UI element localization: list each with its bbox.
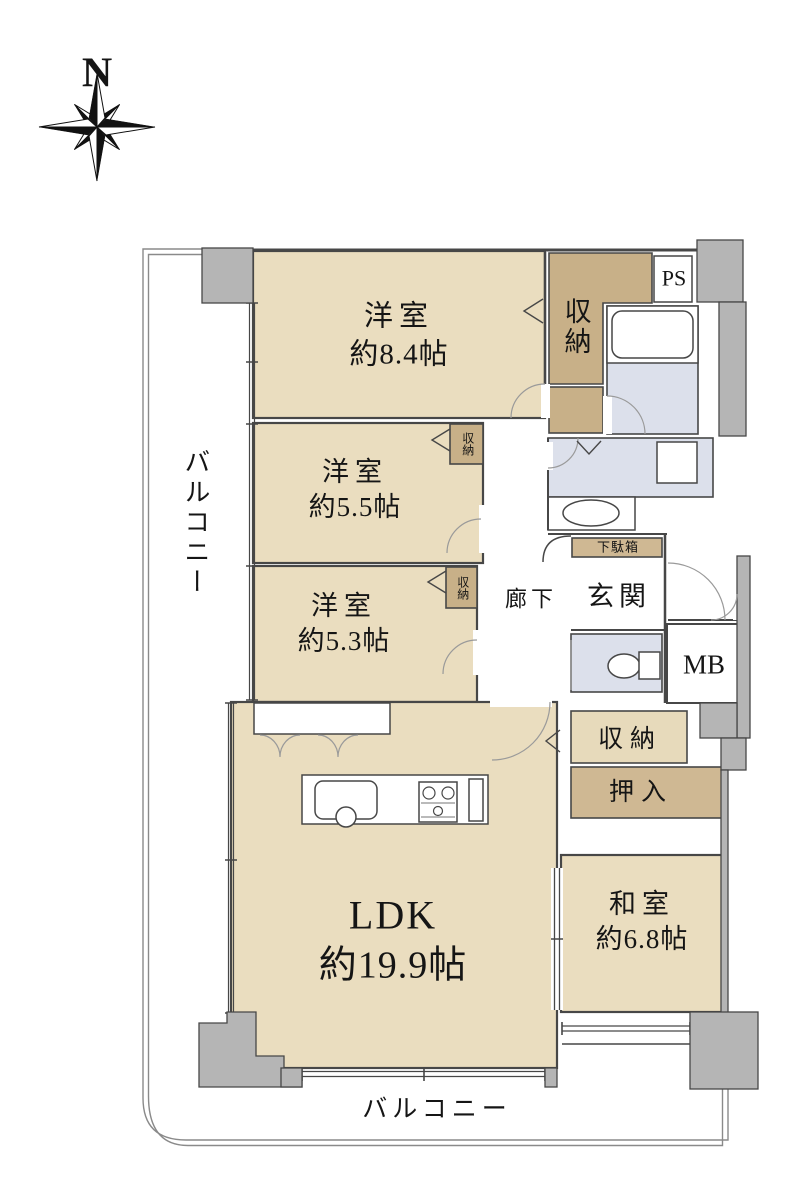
balcony-bottom-label: バルコニー: [362, 1094, 512, 1127]
kitchen-faucet-icon: [336, 807, 356, 827]
pillar-bottom-right: [690, 1012, 758, 1089]
stove-icon: [419, 782, 457, 822]
room-ldk-label: LDK 約19.9帖: [319, 889, 468, 990]
counter-end-panel: [469, 779, 483, 821]
room-name: 洋室: [349, 298, 448, 336]
kitchen-counter: [302, 775, 488, 827]
closet-hall-label: 収納: [598, 724, 662, 757]
room-size: 約19.9帖: [319, 941, 468, 990]
room-size: 約5.5帖: [309, 490, 402, 525]
closet-55-label: 収納: [459, 432, 475, 456]
closet-53-label: 収納: [454, 576, 470, 600]
shoe-cabinet-label: 下駄箱: [597, 540, 639, 557]
room-name: 洋室: [309, 455, 402, 490]
closet-entry-box: [549, 387, 603, 433]
room-western-53-label: 洋室 約5.3帖: [298, 589, 391, 659]
room-western-55-label: 洋室 約5.5帖: [309, 455, 402, 525]
room-size: 約6.8帖: [596, 922, 689, 957]
room-western-84-label: 洋室 約8.4帖: [349, 298, 448, 373]
floorplan-drawing: [0, 0, 791, 1200]
room-name: 和室: [596, 887, 689, 922]
washing-machine-icon: [657, 442, 697, 483]
room-size: 約8.4帖: [349, 336, 448, 374]
meter-box-label: MB: [683, 647, 725, 682]
bathtub-icon: [612, 311, 693, 358]
room-size: 約5.3帖: [298, 624, 391, 659]
hallway-label: 廊下: [505, 586, 557, 615]
oshiire-label: 押入: [609, 777, 673, 810]
floorplan-canvas: N 洋室 約8.4帖 洋室 約5.5帖 洋室 約5.3帖 LDK 約19.9帖 …: [0, 0, 791, 1200]
room-name: LDK: [319, 889, 468, 941]
pillar-top-left: [202, 248, 253, 303]
entrance-door-arc: [668, 563, 725, 620]
room-name: 洋室: [298, 589, 391, 624]
entrance-label: 玄関: [587, 579, 651, 614]
pipe-space-label: PS: [662, 265, 686, 294]
closet-main-label: 収納: [557, 297, 592, 357]
room-japanese-68-label: 和室 約6.8帖: [596, 887, 689, 957]
wall-top-right: [697, 240, 743, 302]
balcony-left-label: バルコニー: [178, 448, 212, 598]
toilet-tank-icon: [639, 652, 660, 679]
ldk-closet-strip: [254, 703, 390, 734]
sink-basin-icon: [563, 500, 619, 526]
toilet-bowl-icon: [608, 654, 640, 678]
compass-north-label: N: [82, 47, 112, 102]
